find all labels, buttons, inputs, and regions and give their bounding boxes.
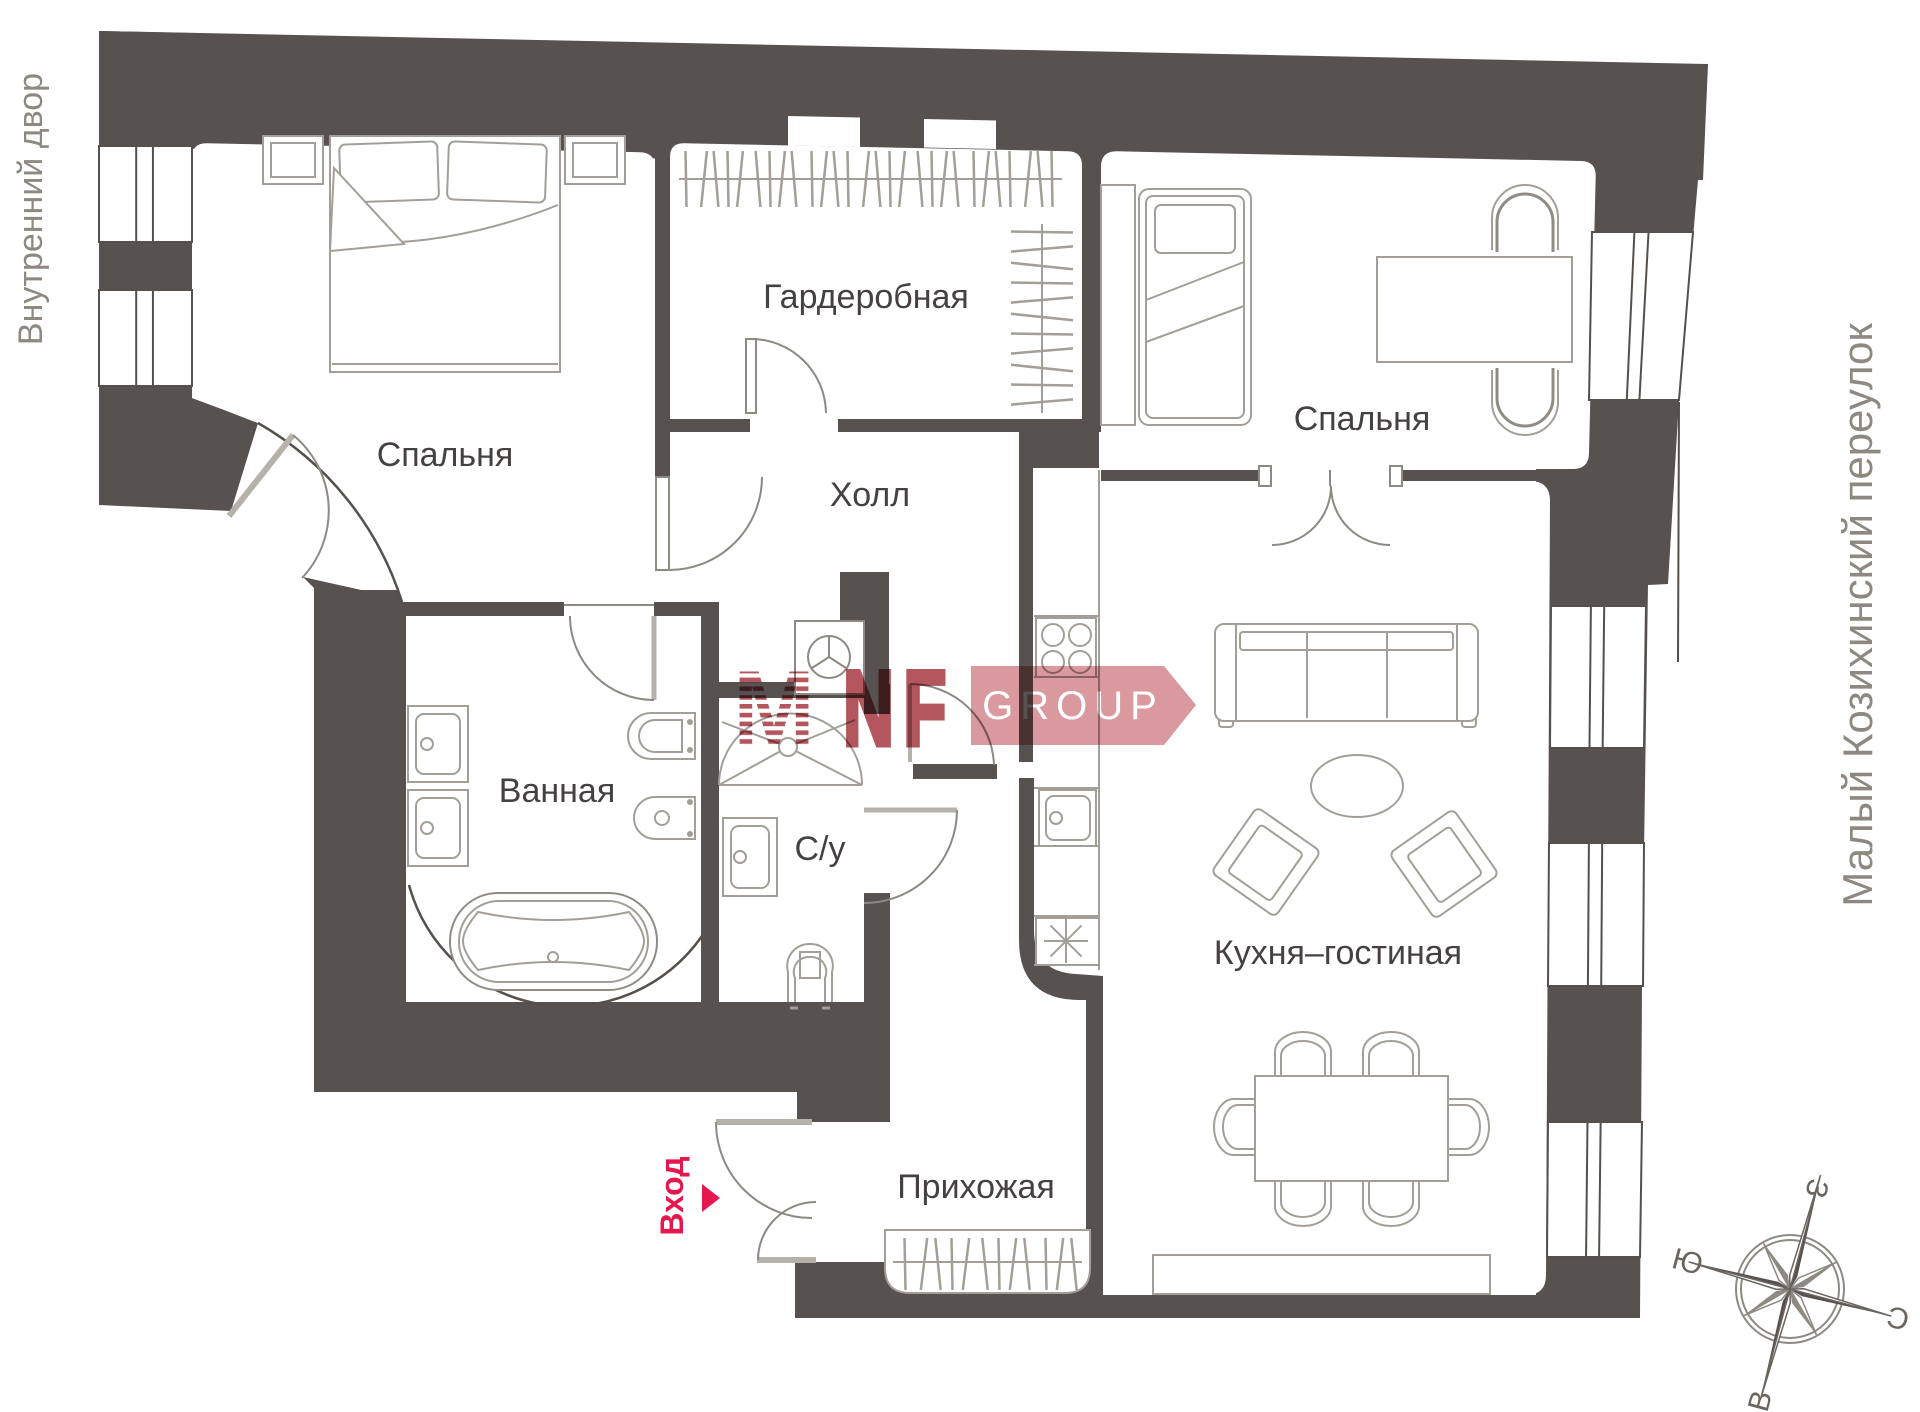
svg-text:Холл: Холл — [830, 476, 910, 514]
svg-text:Ванная: Ванная — [499, 772, 615, 810]
svg-text:Внутренний двор: Внутренний двор — [12, 73, 50, 345]
svg-text:Кухня–гостиная: Кухня–гостиная — [1214, 934, 1462, 972]
svg-text:GROUP: GROUP — [982, 684, 1164, 728]
svg-text:Спальня: Спальня — [377, 436, 514, 474]
svg-text:NF: NF — [843, 649, 956, 768]
svg-text:M: M — [733, 648, 815, 768]
svg-text:Малый Козихинский переулок: Малый Козихинский переулок — [1834, 323, 1881, 907]
svg-text:Гардеробная: Гардеробная — [763, 278, 969, 316]
svg-text:С/у: С/у — [795, 830, 846, 868]
svg-text:Спальня: Спальня — [1294, 400, 1431, 438]
svg-text:Вход: Вход — [654, 1156, 690, 1235]
svg-text:Прихожая: Прихожая — [897, 1168, 1055, 1206]
